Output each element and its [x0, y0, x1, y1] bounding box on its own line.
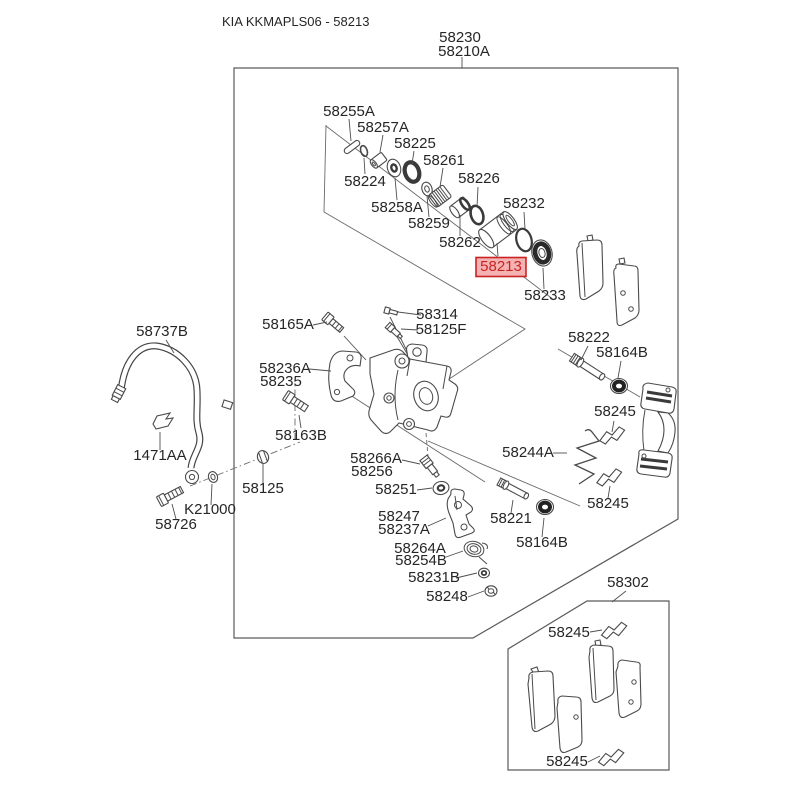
- caliper-body: [369, 344, 458, 434]
- part-label-58255A[interactable]: 58255A: [323, 103, 375, 120]
- part-label-1471AA[interactable]: 1471AA: [133, 447, 186, 464]
- brake-pad-inner-upper: [577, 235, 603, 300]
- bolt-58163B: [282, 390, 309, 413]
- part-label-58237A[interactable]: 58237A: [378, 521, 430, 538]
- part-label-58256[interactable]: 58256: [351, 463, 393, 480]
- brake-pad-outer-upper: [614, 258, 639, 326]
- pad-retainer-clip-58245-lower: [595, 468, 623, 486]
- assembly-code-58210A[interactable]: 58210A: [438, 43, 490, 60]
- washer-K21000: [207, 470, 219, 483]
- part-label-58245-lower[interactable]: 58245: [587, 495, 629, 512]
- kit-clip-58245-top: [601, 622, 628, 639]
- seal-58231B: [479, 568, 490, 578]
- exploded-parts-diagram: KIA KKMAPLS06 - 58213 58230 58210A 58255…: [0, 0, 800, 800]
- screw-58314: [384, 307, 398, 316]
- rod-boot-58164B-lower: [537, 500, 554, 515]
- washer-58251: [432, 480, 450, 496]
- part-label-58245-kit-top[interactable]: 58245: [548, 624, 590, 641]
- part-label-58245-kit-bottom[interactable]: 58245: [546, 753, 588, 770]
- kit-pad-back-right: [589, 640, 614, 703]
- parking-lever-58247: [447, 489, 474, 538]
- part-label-58164B-upper[interactable]: 58164B: [596, 344, 648, 361]
- part-label-58213-highlighted[interactable]: 58213: [480, 258, 522, 275]
- part-label-58254B[interactable]: 58254B: [395, 552, 447, 569]
- kit-pad-front-left: [557, 696, 582, 753]
- part-label-58244A[interactable]: 58244A: [502, 444, 554, 461]
- part-label-58258A[interactable]: 58258A: [371, 199, 423, 216]
- caliper-carrier-bracket: [637, 383, 676, 477]
- return-spring-58264A: [462, 539, 487, 564]
- bolt-58165A: [322, 312, 345, 334]
- part-label-58231B[interactable]: 58231B: [408, 569, 460, 586]
- part-label-58259[interactable]: 58259: [408, 215, 450, 232]
- part-label-58257A[interactable]: 58257A: [357, 119, 409, 136]
- part-label-58248[interactable]: 58248: [426, 588, 468, 605]
- part-label-58302[interactable]: 58302: [607, 574, 649, 591]
- piston-seal-58232: [514, 227, 534, 253]
- part-label-58726[interactable]: 58726: [155, 516, 197, 533]
- o-ring-58226: [468, 204, 485, 226]
- rod-boot-58164B-upper: [611, 379, 628, 394]
- banjo-bolt-58726: [156, 485, 184, 507]
- carrier-bracket-58236A: [329, 351, 361, 401]
- part-label-58221[interactable]: 58221: [490, 510, 532, 527]
- part-label-58232[interactable]: 58232: [503, 195, 545, 212]
- adjuster-bolt-58266A: [420, 455, 441, 479]
- kit-pad-front-right: [616, 660, 641, 718]
- nut-58248: [485, 586, 497, 596]
- part-label-58226[interactable]: 58226: [458, 170, 500, 187]
- nut-58125: [256, 449, 271, 465]
- kit-clip-58245-bottom: [598, 749, 625, 766]
- part-label-58164B-lower[interactable]: 58164B: [516, 534, 568, 551]
- part-label-58165A[interactable]: 58165A: [262, 316, 314, 333]
- part-label-58262[interactable]: 58262: [439, 234, 481, 251]
- pad-spring-58244A: [575, 430, 599, 484]
- part-label-58261[interactable]: 58261: [423, 152, 465, 169]
- part-label-58233[interactable]: 58233: [524, 287, 566, 304]
- part-label-58125F[interactable]: 58125F: [416, 321, 467, 338]
- part-label-58245-upper[interactable]: 58245: [594, 403, 636, 420]
- hose-clip-1471AA: [153, 413, 173, 429]
- parts-diagram-canvas: KIA KKMAPLS06 - 58213 58230 58210A 58255…: [0, 0, 800, 800]
- diagram-title: KIA KKMAPLS06 - 58213: [222, 14, 369, 29]
- part-label-58225[interactable]: 58225: [394, 135, 436, 152]
- bushing-58257A: [369, 152, 387, 169]
- part-label-58235[interactable]: 58235: [260, 373, 302, 390]
- part-label-58163B[interactable]: 58163B: [275, 427, 327, 444]
- part-label-58125[interactable]: 58125: [242, 480, 284, 497]
- kit-pad-back-left: [528, 667, 555, 732]
- part-label-58737B[interactable]: 58737B: [136, 323, 188, 340]
- guide-rod-58221: [497, 478, 530, 501]
- part-label-58224[interactable]: 58224: [344, 173, 386, 190]
- part-label-58251[interactable]: 58251: [375, 481, 417, 498]
- washer-58258A: [385, 157, 403, 178]
